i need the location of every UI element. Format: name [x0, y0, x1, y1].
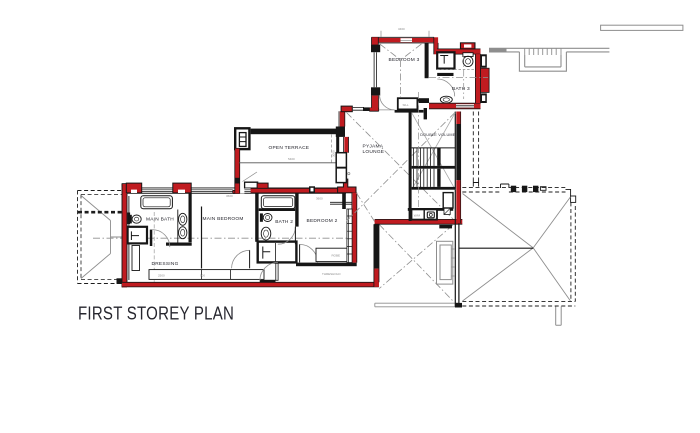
- svg-text:FIRST STOREY PLAN: FIRST STOREY PLAN: [78, 303, 234, 324]
- svg-text:OPEN TERRACE: OPEN TERRACE: [269, 145, 310, 151]
- svg-text:BATH 3: BATH 3: [452, 86, 470, 92]
- svg-text:ROBE: ROBE: [332, 254, 341, 258]
- svg-text:PYJAMA: PYJAMA: [363, 144, 384, 150]
- svg-text:SILL: SILL: [403, 103, 410, 107]
- svg-text:5400: 5400: [288, 157, 295, 161]
- svg-text:3460: 3460: [398, 27, 405, 31]
- svg-text:LOUNGE: LOUNGE: [363, 149, 385, 155]
- svg-text:BATH 2: BATH 2: [275, 219, 293, 225]
- svg-text:3600: 3600: [316, 196, 323, 200]
- svg-text:W/M: W/M: [414, 214, 421, 218]
- svg-text:DOUBLE VOLUME: DOUBLE VOLUME: [420, 133, 456, 137]
- svg-text:DRESSING: DRESSING: [152, 261, 179, 267]
- svg-text:3600: 3600: [226, 194, 233, 198]
- svg-text:MAIN BATH: MAIN BATH: [146, 217, 174, 223]
- svg-text:BEDROOM 2: BEDROOM 2: [307, 218, 338, 224]
- svg-text:2500: 2500: [158, 274, 165, 278]
- svg-text:THRESHOLD: THRESHOLD: [322, 272, 341, 276]
- svg-text:MAIN BEDROOM: MAIN BEDROOM: [203, 216, 244, 222]
- svg-text:900: 900: [200, 274, 205, 278]
- svg-text:3000: 3000: [332, 150, 336, 157]
- svg-text:BEDROOM 3: BEDROOM 3: [389, 57, 420, 63]
